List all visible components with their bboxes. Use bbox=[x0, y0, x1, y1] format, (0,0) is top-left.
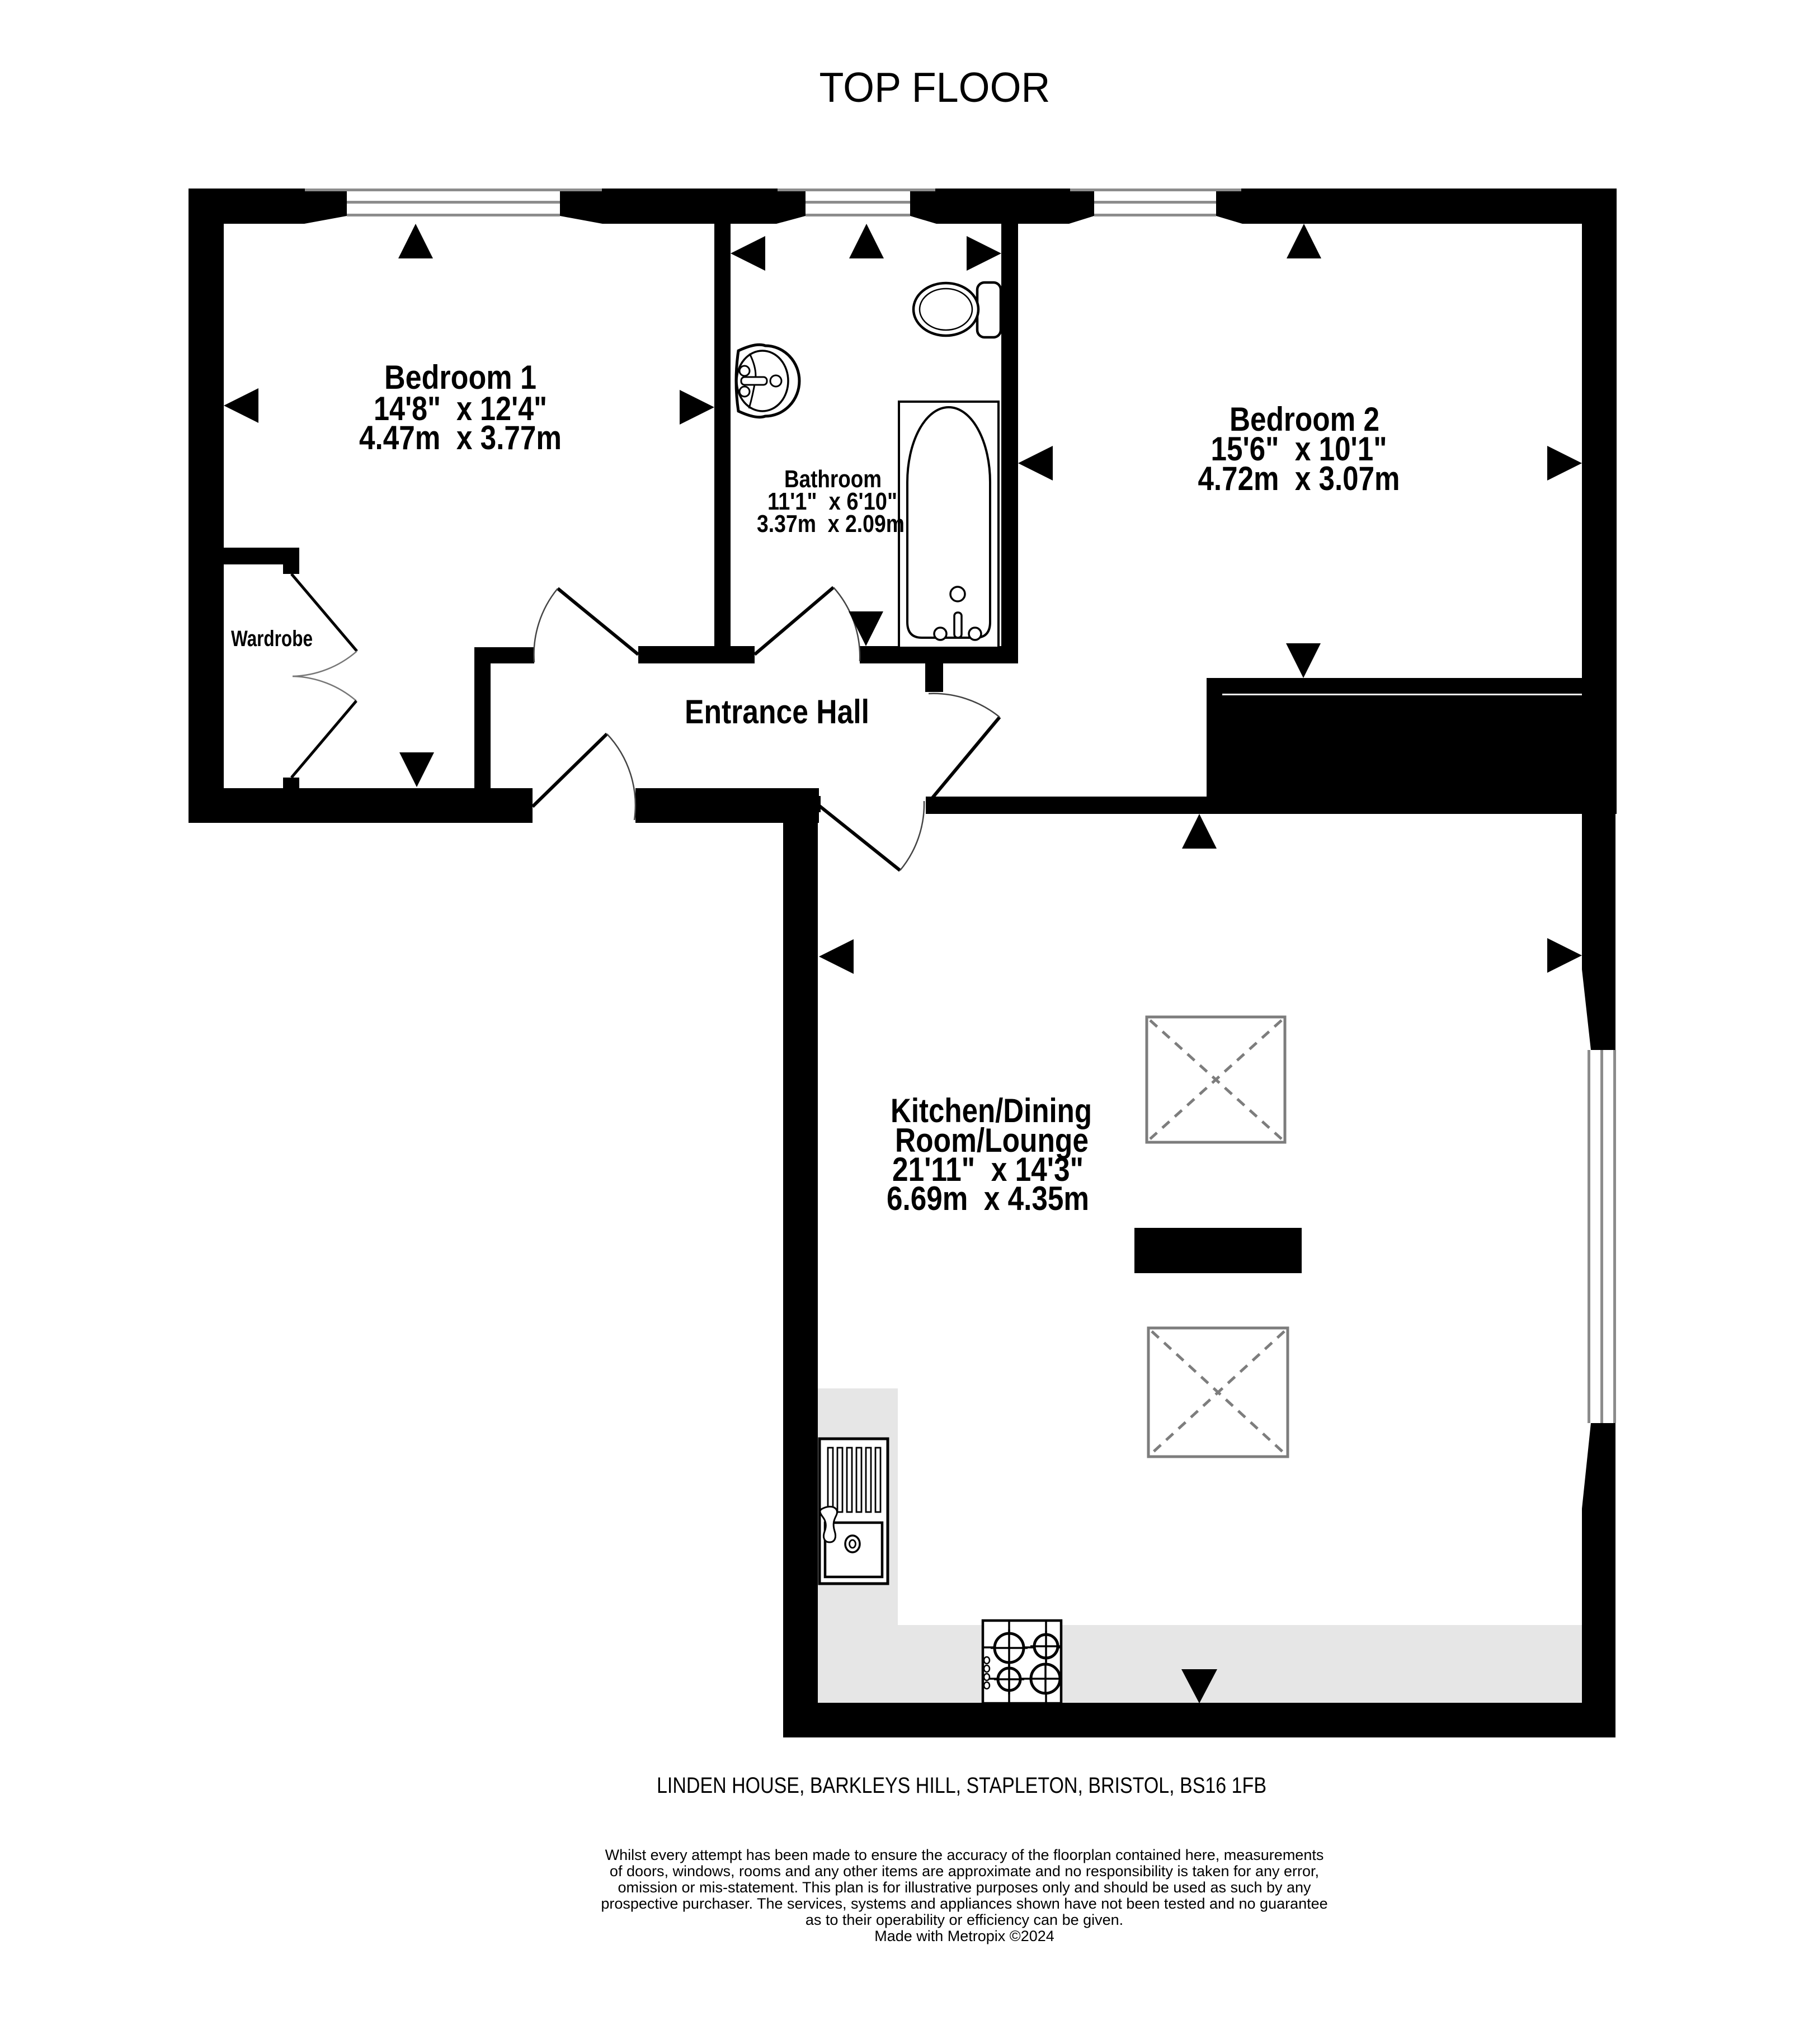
svg-text:TOP FLOOR: TOP FLOOR bbox=[819, 64, 1051, 111]
svg-text:Wardrobe: Wardrobe bbox=[231, 627, 313, 651]
svg-text:prospective purchaser. The ser: prospective purchaser. The services, sys… bbox=[601, 1895, 1327, 1912]
svg-text:omission or mis-statement. Thi: omission or mis-statement. This plan is … bbox=[618, 1879, 1311, 1896]
svg-text:LINDEN HOUSE, BARKLEYS HILL, S: LINDEN HOUSE, BARKLEYS HILL, STAPLETON, … bbox=[657, 1773, 1266, 1798]
svg-text:Made with Metropix ©2024: Made with Metropix ©2024 bbox=[874, 1928, 1054, 1944]
svg-text:4.47m x 3.77m: 4.47m x 3.77m bbox=[359, 419, 562, 456]
svg-text:4.72m x 3.07m: 4.72m x 3.07m bbox=[1198, 460, 1400, 497]
svg-text:Entrance Hall: Entrance Hall bbox=[685, 693, 869, 731]
svg-text:Whilst every attempt has been: Whilst every attempt has been made to en… bbox=[605, 1847, 1324, 1863]
svg-text:of doors, windows, rooms and a: of doors, windows, rooms and any other i… bbox=[610, 1863, 1319, 1880]
svg-text:3.37m x 2.09m: 3.37m x 2.09m bbox=[757, 510, 905, 538]
svg-text:6.69m x 4.35m: 6.69m x 4.35m bbox=[887, 1180, 1089, 1217]
svg-text:as to their operability or eff: as to their operability or efficiency ca… bbox=[806, 1911, 1123, 1928]
